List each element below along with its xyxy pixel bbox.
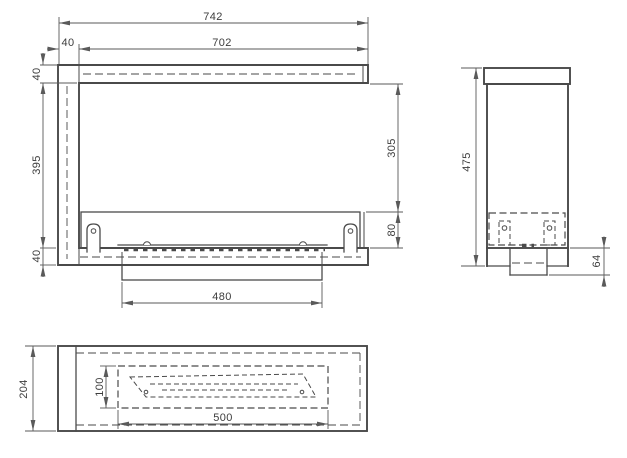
- insert-hole-right: [300, 390, 304, 394]
- dim-label-top-wall-height: 40: [31, 67, 43, 80]
- dim-label-burner-box-height: 80: [386, 223, 398, 236]
- bracket-left-hole: [91, 229, 96, 234]
- hidden-bracket-right: [544, 221, 555, 245]
- side-top-bar: [484, 68, 570, 84]
- dim-label-tray-protrusion: 64: [591, 254, 603, 267]
- dim-label-inner-width: 702: [212, 37, 232, 49]
- frame-outline: [58, 65, 368, 265]
- dim-label-total-height: 475: [461, 152, 473, 172]
- tray-box: [122, 265, 322, 280]
- hidden-burner-box: [489, 213, 565, 245]
- dim-label-opening-depth: 100: [94, 377, 106, 397]
- hidden-bracket-left: [499, 221, 510, 245]
- hidden-bracket-left-hole: [502, 226, 507, 231]
- dim-label-total-width: 742: [203, 11, 223, 23]
- bracket-right-hole: [348, 229, 353, 234]
- dim-label-body-depth: 204: [18, 379, 30, 399]
- screw-bump-right: [300, 242, 307, 245]
- dim-label-left-wall-width: 40: [61, 37, 74, 49]
- burner-opening: [118, 366, 328, 408]
- front-view: [58, 65, 368, 280]
- dim-label-tray-width: 480: [212, 291, 232, 303]
- burner-housing: [81, 212, 360, 248]
- dim-label-opening-width: 500: [213, 412, 233, 424]
- hidden-bracket-right-hole: [547, 226, 552, 231]
- dim-label-bottom-wall-height: 40: [31, 249, 43, 262]
- bracket-right: [344, 224, 357, 252]
- insert-hole-left: [144, 390, 148, 394]
- technical-drawing-sheet: 742 702 40 40 395 40 305 80 480 475 64 2…: [0, 0, 627, 458]
- bracket-left: [87, 224, 100, 252]
- screw-bump-left: [144, 242, 151, 245]
- orthographic-drawing: 742 702 40 40 395 40 305 80 480 475 64 2…: [0, 0, 627, 458]
- hidden-burner-insert: [130, 374, 316, 397]
- dim-label-opening-height: 305: [386, 138, 398, 158]
- dim-label-inner-height: 395: [31, 155, 43, 175]
- side-view: [484, 68, 570, 275]
